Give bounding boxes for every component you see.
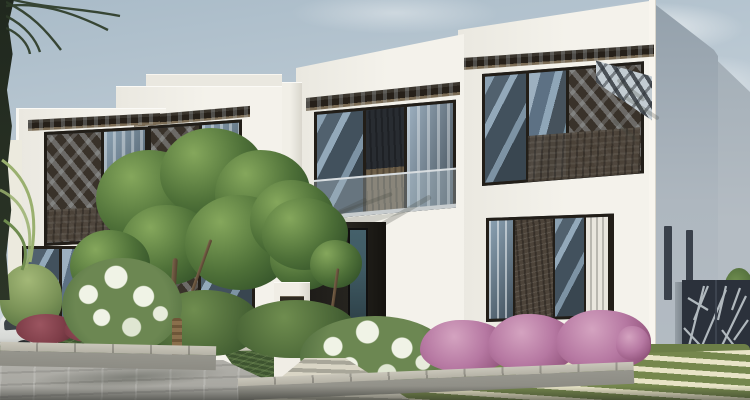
foreground-shadow — [0, 386, 750, 400]
window-glass — [489, 220, 513, 319]
window-spandrel — [528, 127, 640, 182]
white-flowering-bush — [62, 258, 182, 354]
palm-fronds-top-left — [6, 0, 126, 54]
window-glass — [485, 74, 526, 183]
white-louvers — [584, 217, 608, 316]
palm-fronds-left — [0, 150, 50, 272]
window-glass — [553, 218, 584, 317]
left-planter-curb — [0, 342, 216, 371]
slit-window — [664, 226, 672, 300]
villa-exterior-render — [0, 0, 750, 400]
pink-bougainvillea — [616, 326, 650, 360]
ground-window-right-villa — [486, 214, 614, 322]
stone-feature-panel — [513, 219, 553, 318]
